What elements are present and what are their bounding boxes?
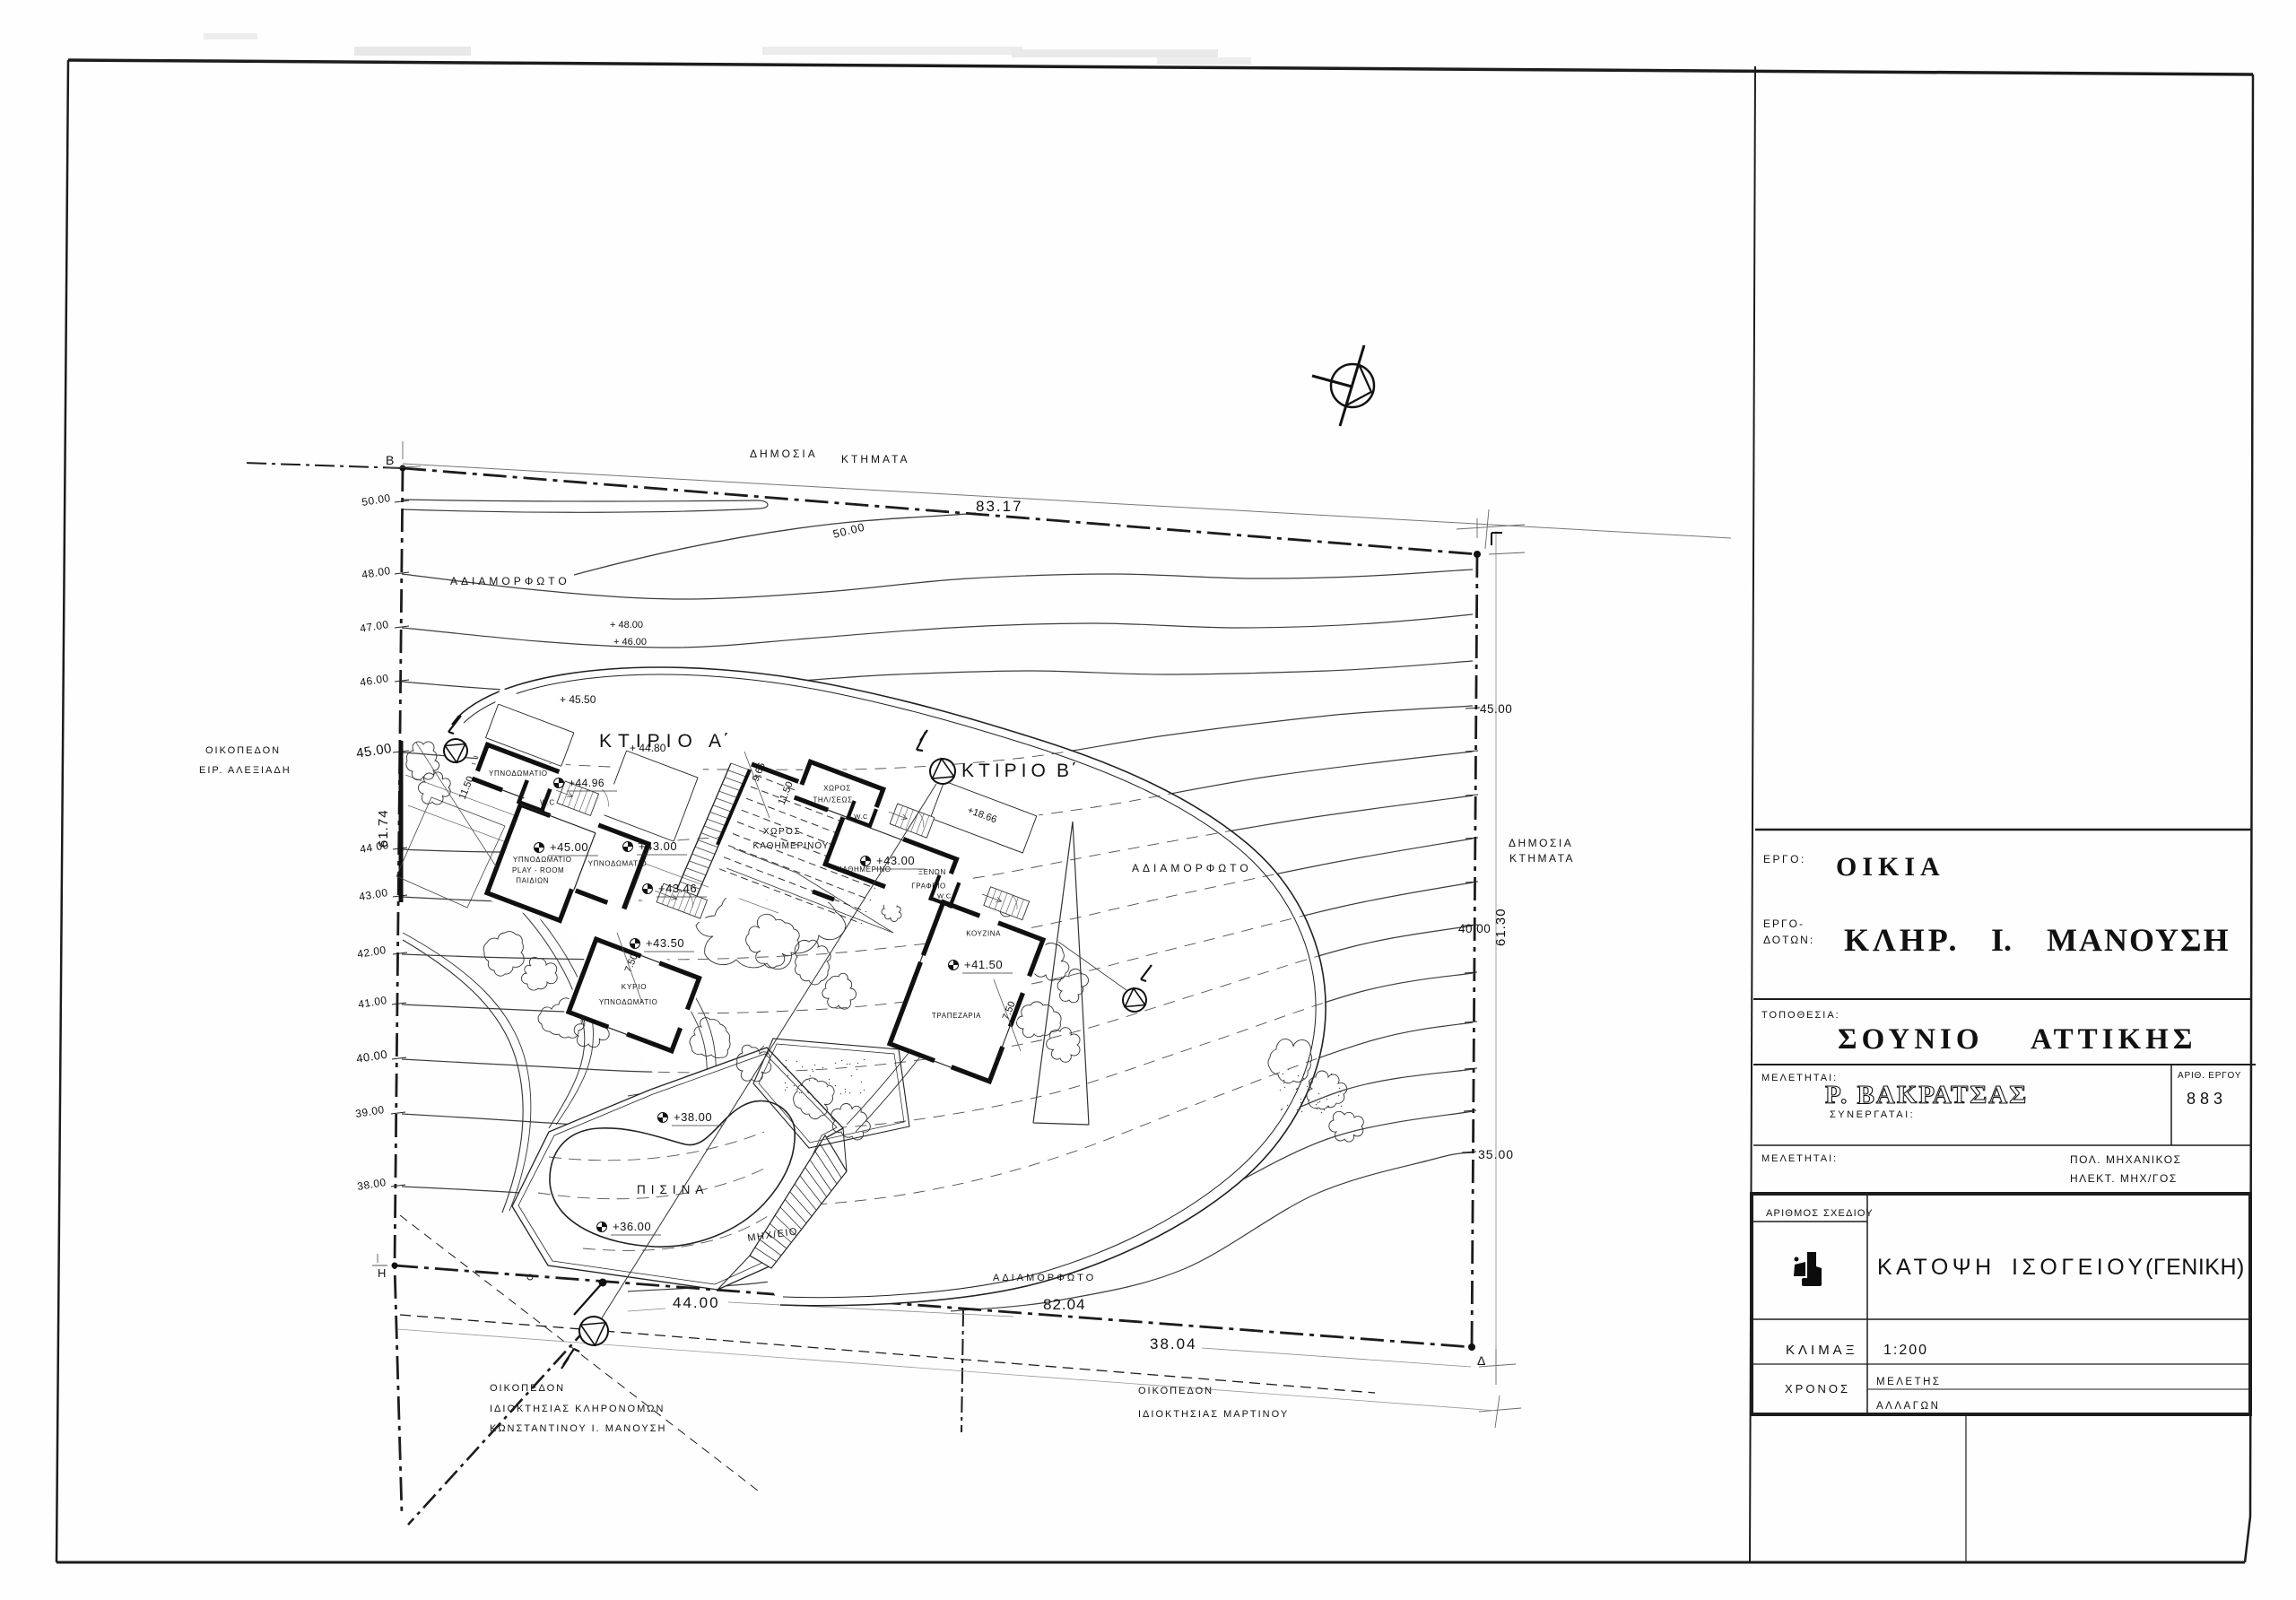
svg-text:ΚΛΗΡ.: ΚΛΗΡ. [1844, 922, 1961, 958]
svg-text:ΙΔΙΟΚΤΗΣΙΑΣ ΜΑΡΤΙΝΟΥ: ΙΔΙΟΚΤΗΣΙΑΣ ΜΑΡΤΙΝΟΥ [1138, 1409, 1289, 1420]
svg-text:ΙΔΙΟΚΤΗΣΙΑΣ ΚΛΗΡΟΝΟΜΩΝ: ΙΔΙΟΚΤΗΣΙΑΣ ΚΛΗΡΟΝΟΜΩΝ [490, 1404, 665, 1414]
svg-text:ΚΑΘΗΜΕΡΙΝΟΥ: ΚΑΘΗΜΕΡΙΝΟΥ [753, 841, 830, 851]
svg-text:ΑΡΙΘ. ΕΡΓΟΥ: ΑΡΙΘ. ΕΡΓΟΥ [2178, 1071, 2241, 1081]
svg-text:ΥΠΝΟΔΩΜΑΤΙΟ: ΥΠΝΟΔΩΜΑΤΙΟ [588, 860, 648, 868]
svg-text:Β΄: Β΄ [1057, 761, 1079, 781]
svg-text:ΧΩΡΟΣ: ΧΩΡΟΣ [823, 784, 851, 792]
svg-text:ΔΗΜΟΣΙΑ: ΔΗΜΟΣΙΑ [750, 448, 818, 460]
svg-text:ΥΠΝΟΔΩΜΑΤΙΟ: ΥΠΝΟΔΩΜΑΤΙΟ [513, 856, 572, 864]
svg-text:38.04: 38.04 [1150, 1335, 1197, 1352]
svg-text:W.C: W.C [937, 891, 952, 900]
svg-text:Δ: Δ [1477, 1353, 1485, 1368]
svg-text:ΑΔΙΑΜΟΡΦΩΤΟ: ΑΔΙΑΜΟΡΦΩΤΟ [1132, 862, 1252, 874]
svg-text:ΓΡΑΦΕΙΟ: ΓΡΑΦΕΙΟ [911, 883, 946, 891]
svg-text:ΟΙΚΙΑ: ΟΙΚΙΑ [1836, 852, 1945, 882]
svg-text:ΚΤΙΡΙΟ: ΚΤΙΡΙΟ [961, 761, 1050, 781]
svg-text:ΠΟΛ. ΜΗΧΑΝΙΚΟΣ: ΠΟΛ. ΜΗΧΑΝΙΚΟΣ [2070, 1153, 2182, 1166]
svg-text:ΟΙΚΟΠΕΔΟΝ: ΟΙΚΟΠΕΔΟΝ [1138, 1386, 1213, 1396]
svg-text:883: 883 [2187, 1090, 2227, 1108]
svg-text:+43.50: +43.50 [646, 936, 684, 950]
svg-text:ΑΤΤΙΚΗΣ: ΑΤΤΙΚΗΣ [2031, 1023, 2196, 1056]
svg-text:W.C: W.C [540, 799, 555, 807]
svg-text:ΧΩΡΟΣ: ΧΩΡΟΣ [763, 827, 801, 837]
svg-text:ΠΙΣΙΝΑ: ΠΙΣΙΝΑ [637, 1183, 709, 1196]
svg-text:82.04: 82.04 [1043, 1296, 1086, 1313]
svg-text:ΟΙΚΟΠΕΔΟΝ: ΟΙΚΟΠΕΔΟΝ [205, 745, 281, 756]
svg-text:ΤΟΠΟΘΕΣΙΑ:: ΤΟΠΟΘΕΣΙΑ: [1761, 1010, 1840, 1021]
svg-text:+43.46: +43.46 [658, 882, 697, 895]
svg-text:ΥΠΝΟΔΩΜΑΤΙΟ: ΥΠΝΟΔΩΜΑΤΙΟ [599, 998, 658, 1006]
svg-text:Ι.: Ι. [1991, 922, 2012, 958]
svg-text:+38.00: +38.00 [674, 1110, 712, 1124]
svg-text:ΜΕΛΕΤΗΤΑΙ:: ΜΕΛΕΤΗΤΑΙ: [1761, 1153, 1838, 1164]
svg-text:ΣΥΝΕΡΓΑΤΑΙ:: ΣΥΝΕΡΓΑΤΑΙ: [1830, 1109, 1915, 1120]
svg-text:H: H [378, 1266, 386, 1280]
svg-text:ΚΤΗΜΑΤΑ: ΚΤΗΜΑΤΑ [1509, 852, 1575, 865]
svg-text:ΕΡΓΟ-: ΕΡΓΟ- [1763, 917, 1805, 930]
svg-text:ΜΕΛΕΤΗΣ: ΜΕΛΕΤΗΣ [1876, 1377, 1942, 1387]
svg-text:83.17: 83.17 [976, 498, 1023, 515]
svg-text:+43.00: +43.00 [639, 839, 677, 853]
svg-text:ΑΡΙΘΜΟΣ: ΑΡΙΘΜΟΣ [1766, 1208, 1819, 1219]
svg-text:ΚΤΗΜΑΤΑ: ΚΤΗΜΑΤΑ [841, 453, 910, 465]
svg-text:61.30: 61.30 [1493, 908, 1509, 946]
svg-text:ΑΛΛΑΓΩΝ: ΑΛΛΑΓΩΝ [1876, 1401, 1940, 1412]
svg-text:ΔΗΜΟΣΙΑ: ΔΗΜΟΣΙΑ [1509, 837, 1573, 849]
svg-text:ΕΡΓΟ:: ΕΡΓΟ: [1763, 853, 1806, 865]
svg-text:ΕΙΡ. ΑΛΕΞΙΑΔΗ: ΕΙΡ. ΑΛΕΞΙΑΔΗ [199, 765, 291, 776]
svg-text:+ 48.00: + 48.00 [610, 620, 643, 630]
svg-text:ΚΤΙΡΙΟ: ΚΤΙΡΙΟ [599, 731, 699, 752]
svg-text:Ρ. ΒΑΚΡΑΤΣΑΣ: Ρ. ΒΑΚΡΑΤΣΑΣ [1825, 1081, 2028, 1109]
svg-text:1:200: 1:200 [1883, 1343, 1928, 1358]
svg-text:ΤΡΑΠΕΖΑΡΙΑ: ΤΡΑΠΕΖΑΡΙΑ [932, 1012, 981, 1020]
svg-text:ΚΩΝΣΤΑΝΤΙΝΟΥ Ι. ΜΑΝΟΥΣΗ: ΚΩΝΣΤΑΝΤΙΝΟΥ Ι. ΜΑΝΟΥΣΗ [490, 1423, 667, 1434]
svg-text:ΜΑΝΟΥΣΗ: ΜΑΝΟΥΣΗ [2047, 922, 2231, 958]
svg-text:W.C: W.C [854, 813, 868, 821]
svg-text:40.00: 40.00 [1458, 922, 1491, 935]
svg-text:ΔΟΤΩΝ:: ΔΟΤΩΝ: [1763, 934, 1814, 946]
svg-text:ΧΡΟΝΟΣ: ΧΡΟΝΟΣ [1785, 1382, 1850, 1396]
svg-text:+45.00: +45.00 [550, 840, 588, 854]
svg-text:35.00: 35.00 [1478, 1147, 1514, 1161]
svg-text:ΗΛΕΚΤ. ΜΗΧ/ΓΟΣ: ΗΛΕΚΤ. ΜΗΧ/ΓΟΣ [2070, 1172, 2178, 1185]
svg-text:+41.50: +41.50 [964, 958, 1003, 971]
svg-text:ΠΑΙΔΙΩΝ: ΠΑΙΔΙΩΝ [516, 876, 549, 884]
svg-text:B: B [386, 453, 394, 467]
svg-text:+36.00: +36.00 [613, 1220, 651, 1233]
svg-text:45.00: 45.00 [1480, 702, 1512, 716]
svg-text:ΣΧΕΔΙΟΥ: ΣΧΕΔΙΟΥ [1823, 1208, 1874, 1219]
svg-text:ΚΟΥΖΙΝΑ: ΚΟΥΖΙΝΑ [966, 930, 1001, 938]
svg-text:ΥΠΝΟΔΩΜΑΤΙΟ: ΥΠΝΟΔΩΜΑΤΙΟ [489, 770, 548, 778]
svg-text:ΙΣΟΓΕΙΟΥ: ΙΣΟΓΕΙΟΥ [2012, 1255, 2147, 1280]
svg-text:ΤΗΛ/ΣΕΩΣ: ΤΗΛ/ΣΕΩΣ [813, 796, 852, 804]
svg-text:44.00: 44.00 [673, 1294, 720, 1311]
svg-text:Α΄: Α΄ [709, 731, 731, 752]
svg-text:ΚΛΙΜΑΞ: ΚΛΙΜΑΞ [1786, 1343, 1857, 1358]
svg-text:(ΓΕΝΙΚΗ): (ΓΕΝΙΚΗ) [2145, 1255, 2245, 1280]
svg-text:+ 45.50: + 45.50 [560, 693, 596, 706]
svg-text:ΑΔΙΑΜΟΡΦΩΤΟ: ΑΔΙΑΜΟΡΦΩΤΟ [993, 1273, 1096, 1283]
svg-text:ΣΟΥΝΙΟ: ΣΟΥΝΙΟ [1838, 1023, 1984, 1056]
svg-text:ΑΔΙΑΜΟΡΦΩΤΟ: ΑΔΙΑΜΟΡΦΩΤΟ [450, 575, 570, 587]
svg-text:+44.96: +44.96 [569, 777, 604, 789]
svg-text:PLAY - ROOM: PLAY - ROOM [512, 866, 564, 874]
svg-text:ΚΑΤΟΨΗ: ΚΑΤΟΨΗ [1877, 1255, 1996, 1280]
svg-text:+43.00: +43.00 [876, 854, 915, 867]
svg-text:ΚΥΡΙΟ: ΚΥΡΙΟ [622, 983, 647, 991]
svg-text:ΟΙΚΟΠΕΔΟΝ: ΟΙΚΟΠΕΔΟΝ [490, 1383, 565, 1394]
svg-text:+ 46.00: + 46.00 [613, 637, 647, 648]
